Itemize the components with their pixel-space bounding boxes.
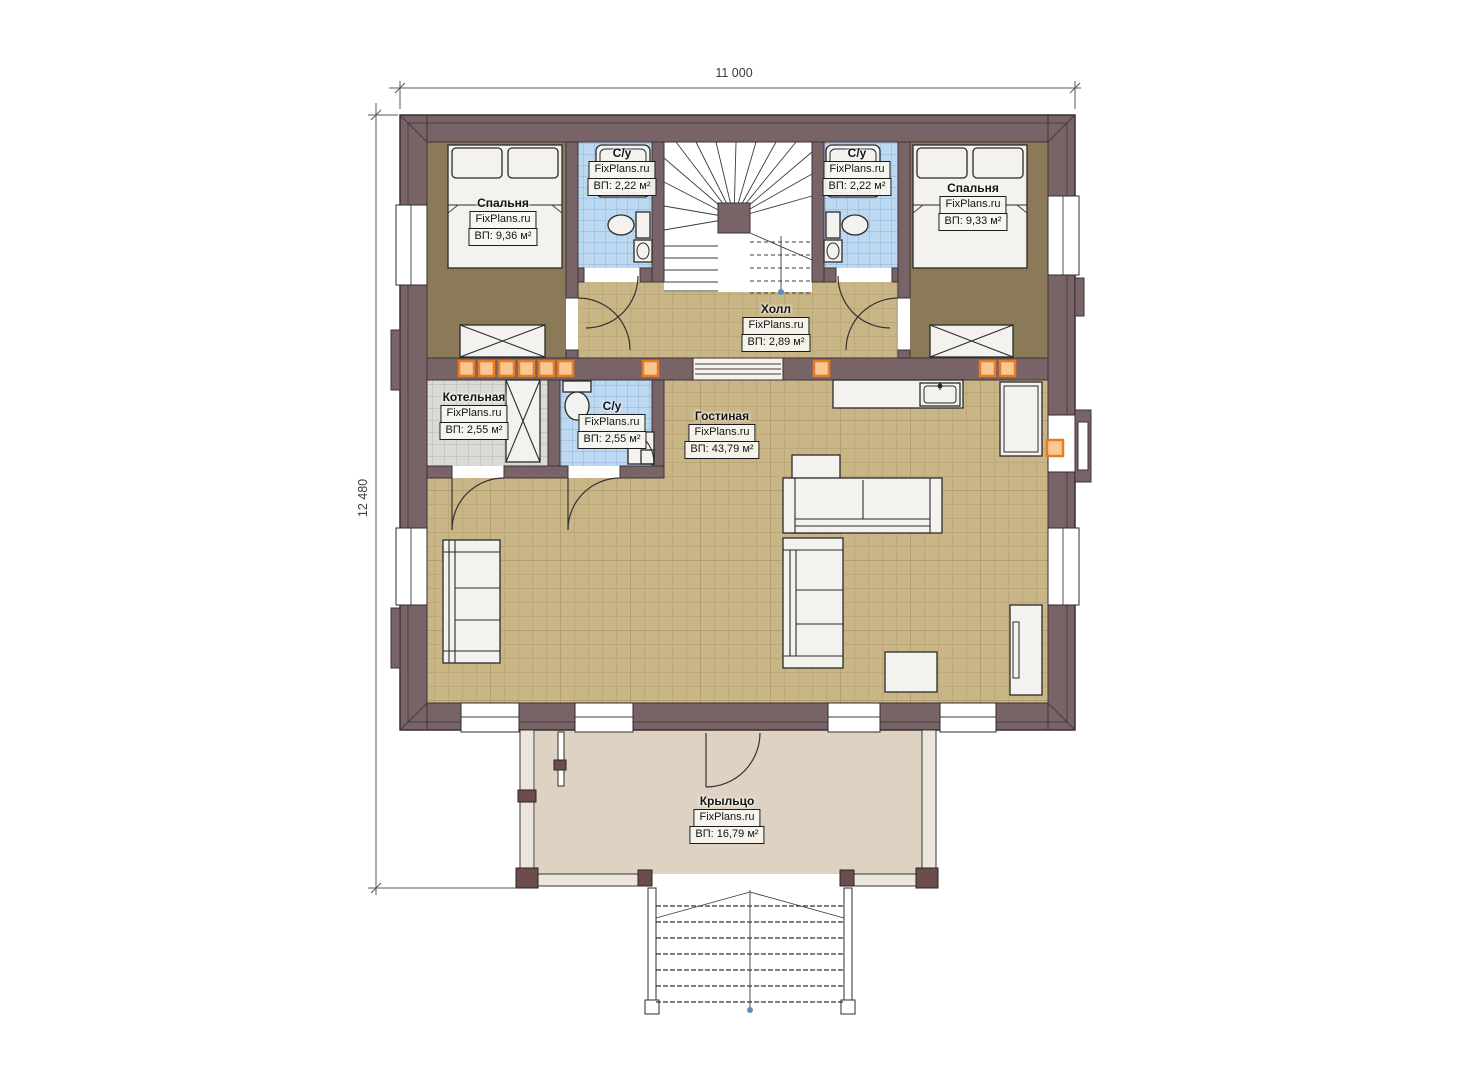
room-label-bathroom-upper-left: С/у FixPlans.ru ВП: 2,22 м² — [587, 146, 656, 196]
room-area: ВП: 9,33 м² — [938, 213, 1007, 231]
room-brand-watermark: FixPlans.ru — [578, 414, 645, 432]
boiler-unit — [506, 380, 540, 462]
room-label-living: Гостиная FixPlans.ru ВП: 43,79 м² — [684, 409, 759, 459]
left-wall-pilaster — [391, 330, 400, 390]
porch-rail-bottom-right — [846, 874, 922, 886]
right-wall-pilaster — [1075, 278, 1084, 316]
room-label-porch: Крыльцо FixPlans.ru ВП: 16,79 м² — [689, 794, 764, 844]
room-area: ВП: 2,22 м² — [587, 178, 656, 196]
entrance-door — [1047, 410, 1091, 482]
dimension-height-label: 12 480 — [356, 479, 370, 517]
room-name: С/у — [613, 146, 632, 160]
porch-post — [638, 870, 652, 886]
porch-column — [558, 732, 564, 786]
left-wall-pilaster — [391, 608, 400, 668]
entrance-marker — [1047, 440, 1063, 456]
room-area: ВП: 2,89 м² — [741, 334, 810, 352]
exterior-stairs — [645, 888, 855, 1014]
room-brand-watermark: FixPlans.ru — [469, 211, 536, 229]
room-area: ВП: 43,79 м² — [684, 441, 759, 459]
dimension-width-label: 11 000 — [715, 66, 752, 80]
floor-plan-drawing — [0, 0, 1473, 1080]
fridge — [1000, 382, 1042, 456]
room-label-bedroom-left: Спальня FixPlans.ru ВП: 9,36 м² — [468, 196, 537, 246]
sofa-left — [443, 540, 500, 663]
wardrobe — [930, 325, 1013, 357]
stair-newel — [718, 203, 750, 233]
tv-cabinet — [1010, 605, 1042, 695]
room-brand-watermark: FixPlans.ru — [688, 424, 755, 442]
kitchen-counter — [833, 380, 963, 408]
porch-post — [916, 868, 938, 888]
room-name: Спальня — [947, 181, 999, 195]
window — [828, 703, 880, 732]
room-area: ВП: 9,36 м² — [468, 228, 537, 246]
porch-rail-right — [922, 730, 936, 888]
stairs-reference-dot — [747, 1007, 753, 1013]
sink — [824, 240, 842, 262]
room-brand-watermark: FixPlans.ru — [693, 809, 760, 827]
coffee-table — [885, 652, 937, 692]
room-brand-watermark: FixPlans.ru — [823, 161, 890, 179]
porch-post — [518, 790, 536, 802]
sink — [634, 240, 652, 262]
room-brand-watermark: FixPlans.ru — [939, 196, 1006, 214]
room-name: Холл — [761, 302, 791, 316]
room-name: Крыльцо — [700, 794, 755, 808]
window — [461, 703, 519, 732]
room-brand-watermark: FixPlans.ru — [440, 405, 507, 423]
porch-rail-bottom-left — [534, 874, 646, 886]
window — [396, 528, 427, 605]
window — [575, 703, 633, 732]
window — [1048, 196, 1079, 275]
window — [1048, 528, 1079, 605]
room-name: С/у — [848, 146, 867, 160]
room-label-bathroom-upper-right: С/у FixPlans.ru ВП: 2,22 м² — [822, 146, 891, 196]
window — [396, 205, 427, 285]
room-name: Гостиная — [695, 409, 749, 423]
room-name: Котельная — [443, 390, 506, 404]
porch-column-block — [554, 760, 566, 770]
hall-threshold — [693, 358, 783, 380]
floor-plan: Спальня FixPlans.ru ВП: 9,36 м² С/у FixP… — [0, 0, 1473, 1080]
wardrobe — [460, 325, 545, 357]
room-area: ВП: 16,79 м² — [689, 826, 764, 844]
room-name: С/у — [603, 399, 622, 413]
room-area: ВП: 2,22 м² — [822, 178, 891, 196]
porch-post — [516, 868, 538, 888]
room-name: Спальня — [477, 196, 529, 210]
room-area: ВП: 2,55 м² — [439, 422, 508, 440]
room-brand-watermark: FixPlans.ru — [742, 317, 809, 335]
room-area: ВП: 2,55 м² — [577, 431, 646, 449]
room-label-bathroom-lower: С/у FixPlans.ru ВП: 2,55 м² — [577, 399, 646, 449]
room-label-boiler: Котельная FixPlans.ru ВП: 2,55 м² — [439, 390, 508, 440]
window — [940, 703, 996, 732]
room-brand-watermark: FixPlans.ru — [588, 161, 655, 179]
room-label-bedroom-right: Спальня FixPlans.ru ВП: 9,33 м² — [938, 181, 1007, 231]
porch-post — [840, 870, 854, 886]
room-label-hall: Холл FixPlans.ru ВП: 2,89 м² — [741, 302, 810, 352]
porch-rail-left — [520, 730, 534, 888]
